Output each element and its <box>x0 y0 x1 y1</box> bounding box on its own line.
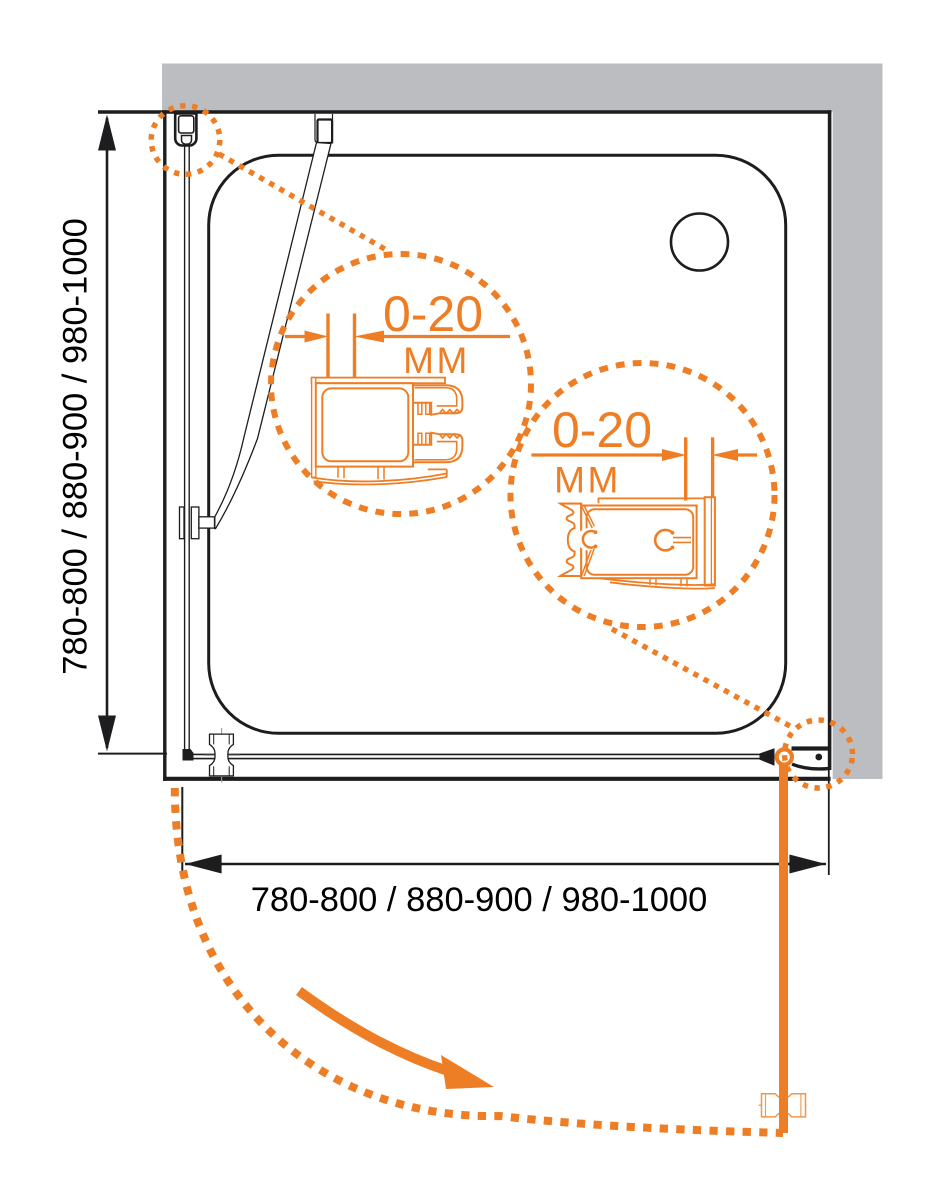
svg-text:780-800 / 880-900 / 980-1000: 780-800 / 880-900 / 980-1000 <box>57 218 95 675</box>
svg-text:ММ: ММ <box>403 340 470 381</box>
svg-text:0-20: 0-20 <box>552 402 652 458</box>
svg-text:ММ: ММ <box>554 459 621 500</box>
svg-text:0-20: 0-20 <box>383 286 483 342</box>
svg-text:780-800 / 880-900 / 980-1000: 780-800 / 880-900 / 980-1000 <box>251 881 708 919</box>
